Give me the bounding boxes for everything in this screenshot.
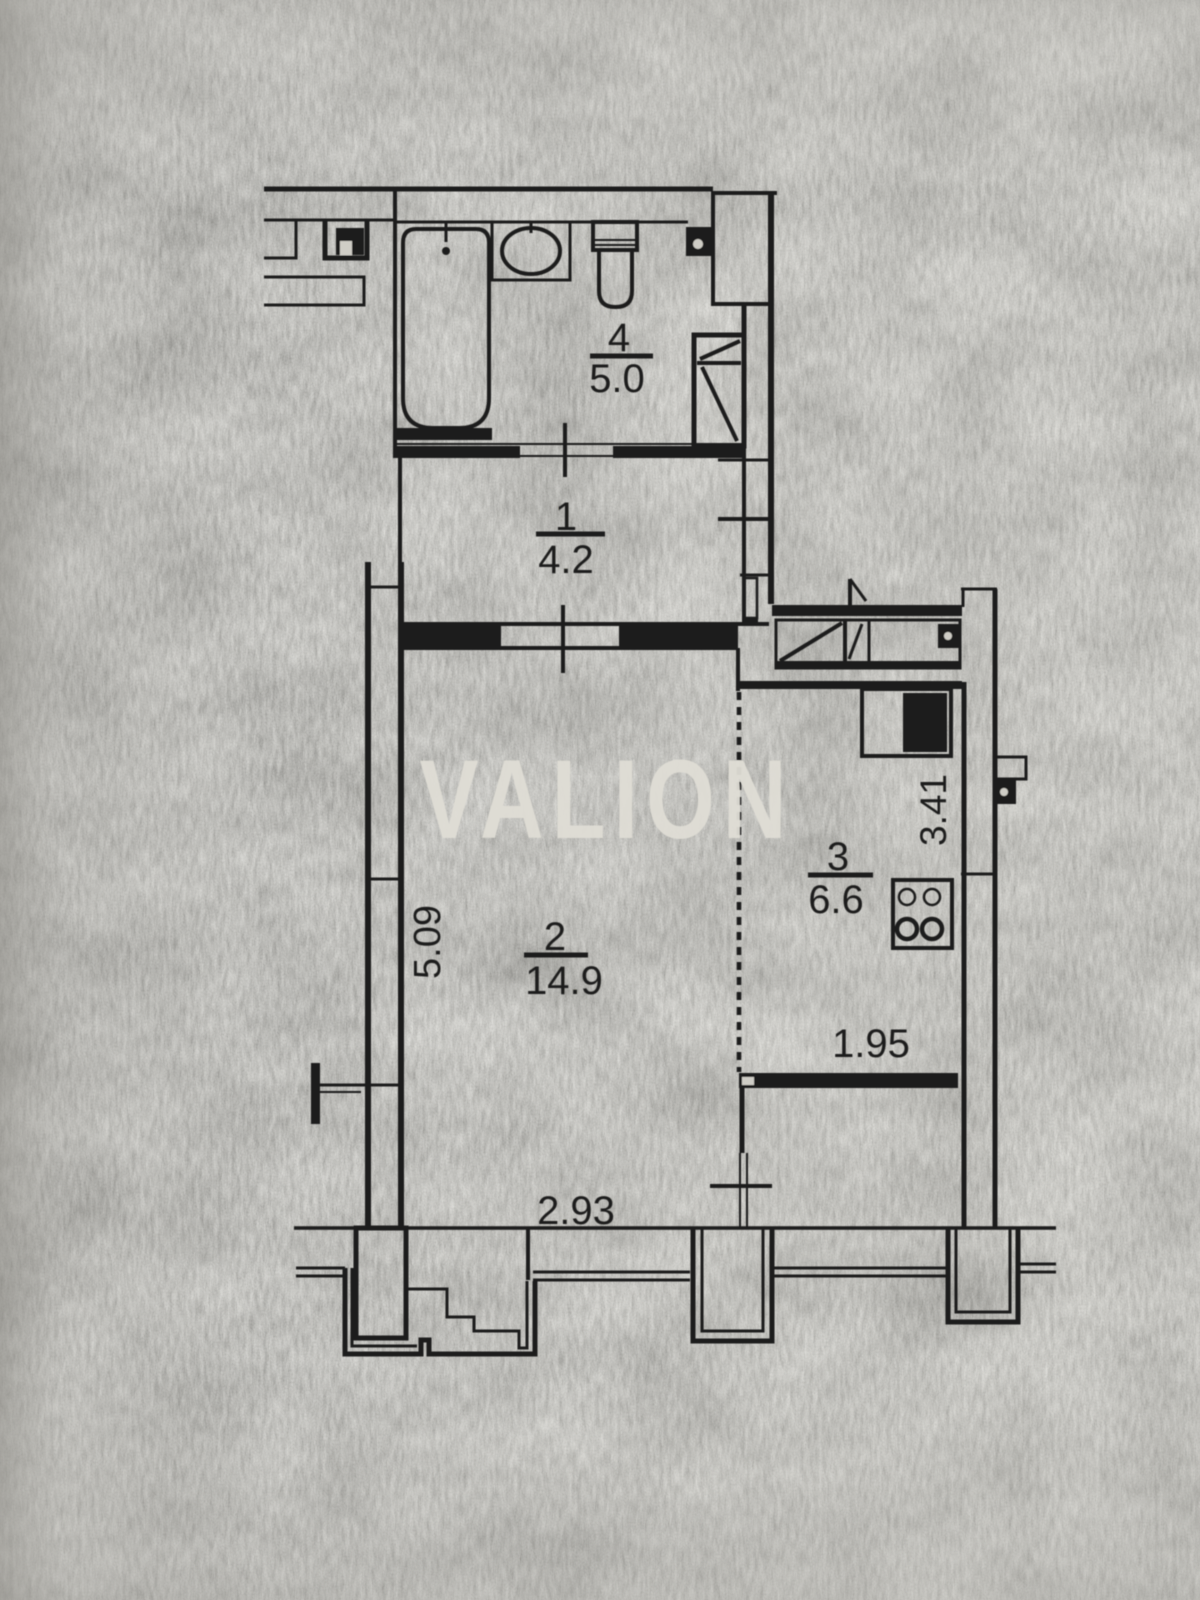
svg-text:6.6: 6.6: [808, 878, 864, 922]
svg-text:3.41: 3.41: [913, 774, 954, 846]
svg-text:4: 4: [608, 316, 630, 360]
svg-text:4.2: 4.2: [538, 538, 594, 582]
svg-text:VALION: VALION: [419, 738, 794, 862]
svg-text:5.09: 5.09: [407, 905, 449, 979]
svg-text:14.9: 14.9: [525, 959, 603, 1003]
svg-text:2: 2: [544, 915, 566, 959]
svg-text:1.95: 1.95: [832, 1022, 910, 1066]
svg-text:2.93: 2.93: [537, 1189, 615, 1233]
svg-text:3: 3: [827, 835, 849, 879]
svg-text:5.0: 5.0: [589, 357, 645, 401]
